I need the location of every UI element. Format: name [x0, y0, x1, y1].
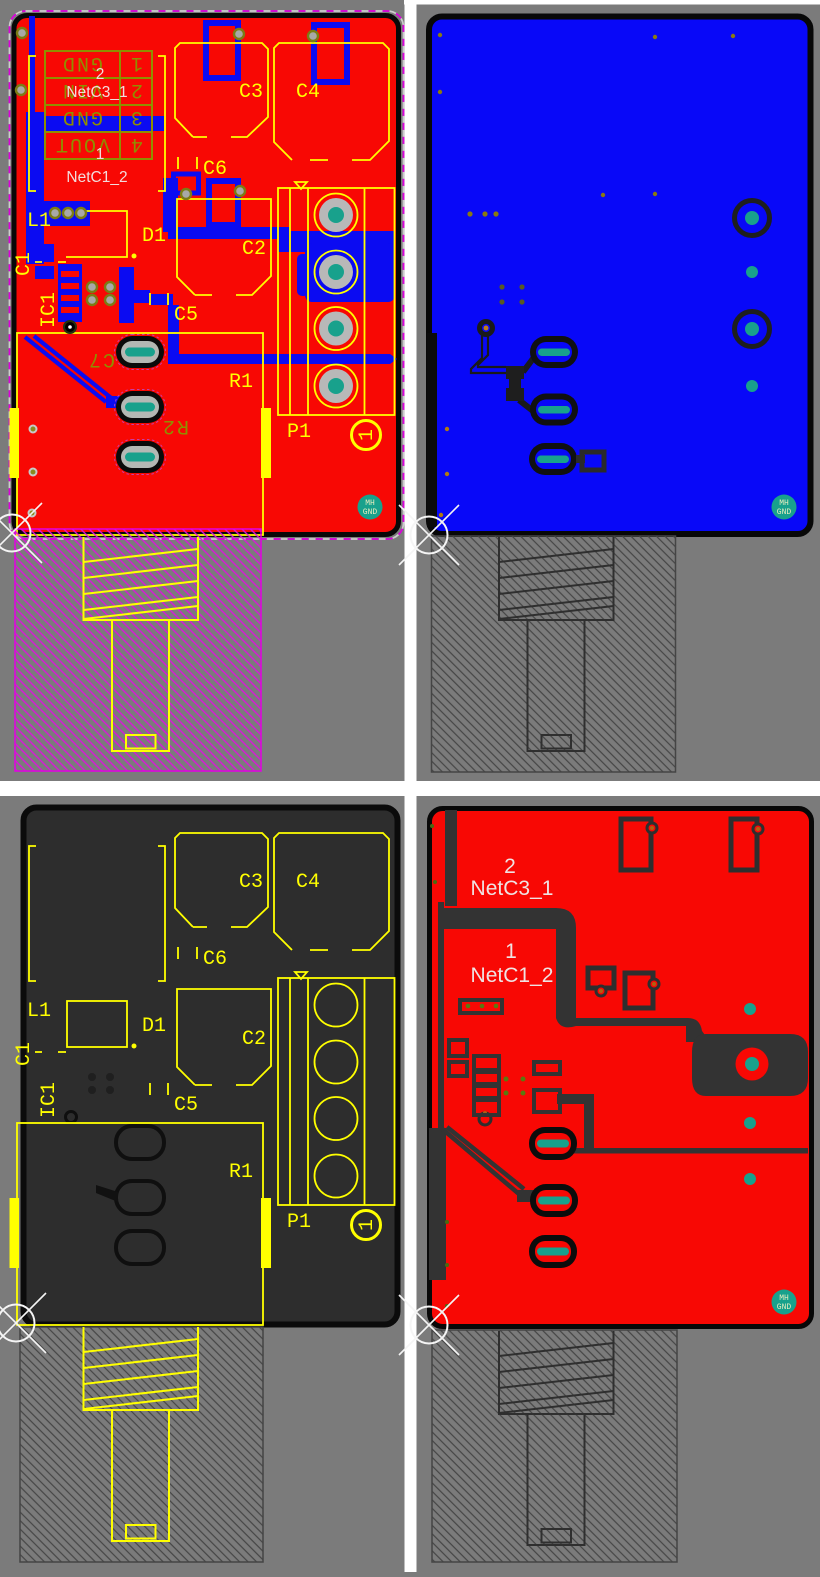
svg-text:NetC3_1: NetC3_1 — [66, 84, 127, 101]
svg-text:GND: GND — [363, 508, 378, 517]
svg-text:MH: MH — [779, 499, 789, 508]
svg-text:NetC1_2: NetC1_2 — [66, 169, 127, 186]
svg-text:NetC1_2: NetC1_2 — [471, 964, 554, 987]
svg-text:NetC3_1: NetC3_1 — [471, 877, 554, 900]
svg-text:1: 1 — [505, 940, 517, 963]
svg-text:GND: GND — [777, 1303, 792, 1312]
svg-text:1: 1 — [129, 51, 143, 74]
svg-text:2: 2 — [96, 66, 105, 83]
svg-text:R2: R2 — [161, 414, 189, 437]
svg-text:3: 3 — [129, 105, 143, 128]
svg-text:2: 2 — [129, 78, 143, 101]
svg-text:4: 4 — [129, 132, 143, 155]
svg-text:C7: C7 — [87, 347, 115, 370]
svg-text:2: 2 — [504, 855, 516, 878]
svg-text:MH: MH — [365, 499, 375, 508]
svg-text:GND: GND — [61, 105, 103, 128]
svg-text:MH: MH — [779, 1294, 789, 1303]
svg-text:1: 1 — [96, 146, 105, 163]
svg-text:GND: GND — [777, 508, 792, 517]
